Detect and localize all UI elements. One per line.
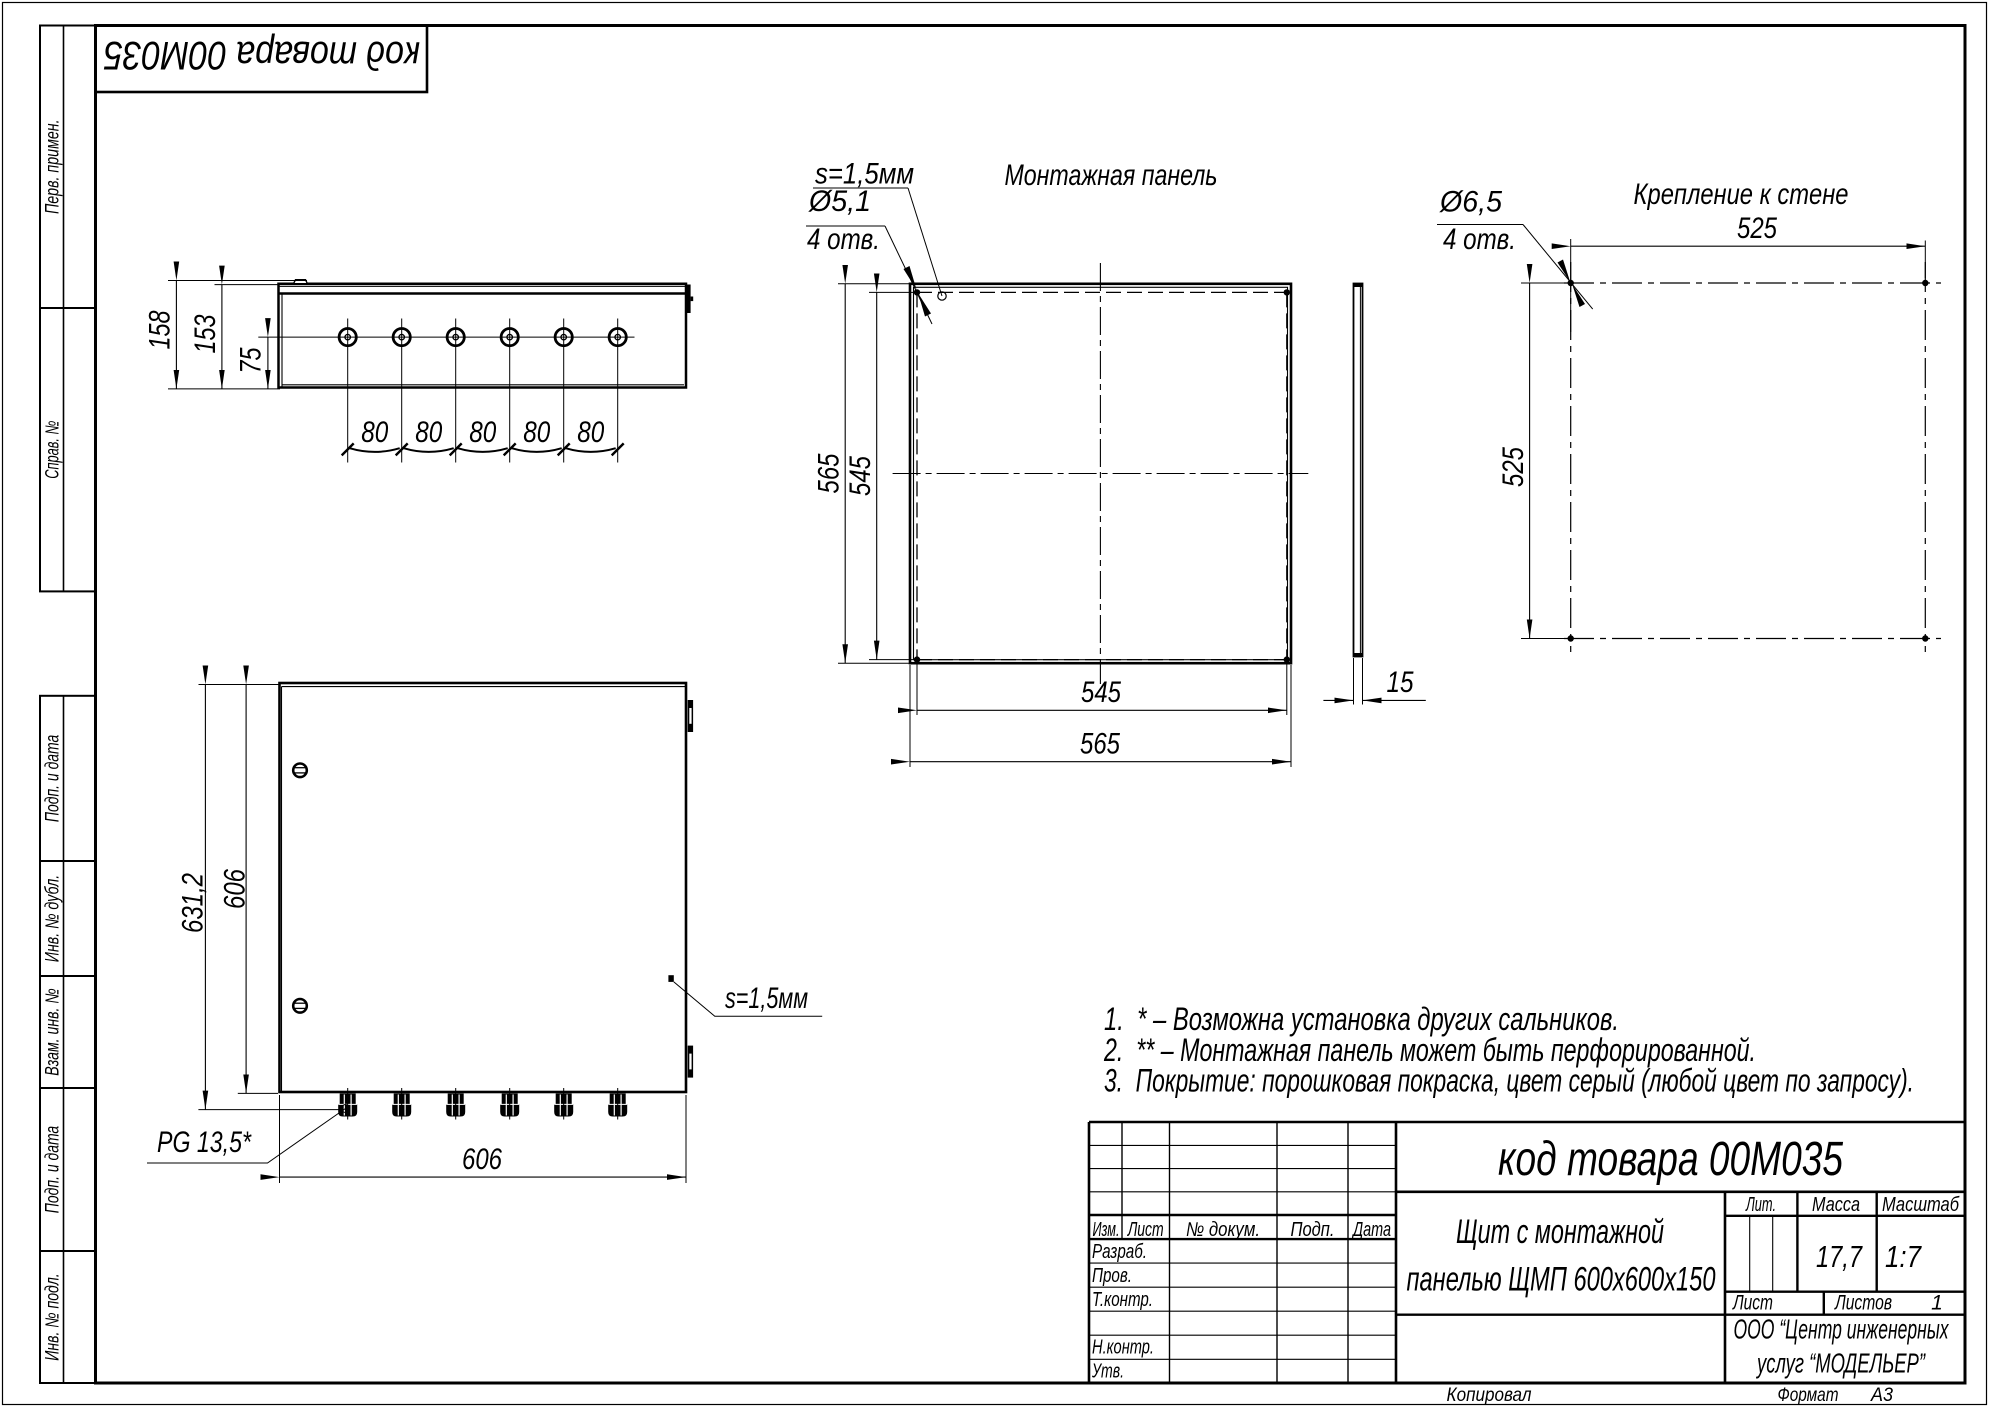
- svg-text:606: 606: [462, 1143, 502, 1176]
- svg-text:80: 80: [523, 416, 550, 449]
- svg-text:панелью ЩМП 600х600х150: панелью ЩМП 600х600х150: [1407, 1261, 1716, 1299]
- svg-text:3. Покрытие: порошковая покра: 3. Покрытие: порошковая покраска, цвет с…: [1104, 1063, 1914, 1099]
- svg-text:Перв. примен.: Перв. примен.: [43, 119, 64, 214]
- svg-text:Взам. инв. №: Взам. инв. №: [43, 988, 64, 1075]
- svg-text:Лит.: Лит.: [1745, 1194, 1776, 1216]
- svg-text:Н.контр.: Н.контр.: [1092, 1337, 1154, 1359]
- svg-text:услуг “МОДЕЛЬЕР”: услуг “МОДЕЛЬЕР”: [1756, 1348, 1926, 1379]
- svg-text:Масса: Масса: [1812, 1194, 1860, 1216]
- svg-text:PG 13,5*: PG 13,5*: [157, 1126, 252, 1159]
- svg-text:80: 80: [415, 416, 442, 449]
- svg-text:4 отв.: 4 отв.: [1443, 223, 1516, 256]
- svg-text:525: 525: [1497, 447, 1530, 487]
- svg-text:Изм.: Изм.: [1093, 1219, 1120, 1241]
- svg-text:545: 545: [844, 456, 877, 496]
- svg-text:565: 565: [813, 453, 846, 493]
- svg-text:80: 80: [361, 416, 388, 449]
- svg-text:Щит с монтажной: Щит с монтажной: [1456, 1213, 1664, 1251]
- svg-text:Пров.: Пров.: [1092, 1265, 1132, 1287]
- svg-text:Ø5,1: Ø5,1: [808, 185, 871, 218]
- svg-text:4 отв.: 4 отв.: [807, 223, 880, 256]
- svg-text:1: 1: [1931, 1292, 1943, 1315]
- svg-text:Крепление к стене: Крепление к стене: [1634, 178, 1849, 211]
- svg-text:Утв.: Утв.: [1091, 1361, 1124, 1383]
- svg-text:А3: А3: [1870, 1385, 1893, 1406]
- svg-text:Справ. №: Справ. №: [43, 421, 64, 479]
- svg-text:153: 153: [189, 314, 222, 353]
- svg-text:17,7: 17,7: [1816, 1239, 1863, 1274]
- svg-text:158: 158: [144, 310, 177, 349]
- svg-text:Подп.: Подп.: [1291, 1219, 1335, 1241]
- svg-text:1:7: 1:7: [1885, 1239, 1922, 1274]
- svg-text:15: 15: [1387, 666, 1414, 699]
- svg-text:Подп. и дата: Подп. и дата: [43, 735, 64, 822]
- svg-text:Монтажная панель: Монтажная панель: [1005, 159, 1218, 192]
- svg-text:код товара 00М035: код товара 00М035: [1498, 1133, 1843, 1186]
- svg-text:код товара 00М035: код товара 00М035: [103, 33, 420, 77]
- svg-text:Дата: Дата: [1352, 1219, 1391, 1241]
- svg-text:Инв. № дубл.: Инв. № дубл.: [43, 875, 64, 962]
- svg-text:Копировал: Копировал: [1447, 1385, 1532, 1406]
- svg-text:Масштаб: Масштаб: [1882, 1194, 1960, 1216]
- svg-text:Разраб.: Разраб.: [1092, 1241, 1147, 1263]
- svg-text:Т.контр.: Т.контр.: [1092, 1289, 1153, 1311]
- svg-text:75: 75: [235, 347, 268, 373]
- svg-text:631,2: 631,2: [177, 873, 210, 933]
- svg-text:Формат: Формат: [1778, 1385, 1839, 1406]
- svg-text:80: 80: [577, 416, 604, 449]
- svg-text:Листов: Листов: [1834, 1292, 1893, 1315]
- svg-text:565: 565: [1080, 728, 1120, 761]
- svg-text:№ докум.: № докум.: [1186, 1219, 1260, 1241]
- svg-text:Подп. и дата: Подп. и дата: [43, 1126, 64, 1213]
- svg-text:80: 80: [469, 416, 496, 449]
- svg-text:606: 606: [219, 869, 252, 909]
- svg-text:Лист: Лист: [1126, 1219, 1163, 1241]
- svg-text:525: 525: [1737, 212, 1777, 245]
- svg-text:Лист: Лист: [1732, 1292, 1773, 1315]
- svg-text:s=1,5мм: s=1,5мм: [725, 982, 808, 1015]
- svg-text:Инв. № подл.: Инв. № подл.: [43, 1273, 64, 1360]
- svg-text:Ø6,5: Ø6,5: [1439, 186, 1502, 219]
- svg-text:ООО “Центр инженерных: ООО “Центр инженерных: [1734, 1314, 1950, 1345]
- svg-text:545: 545: [1081, 676, 1121, 709]
